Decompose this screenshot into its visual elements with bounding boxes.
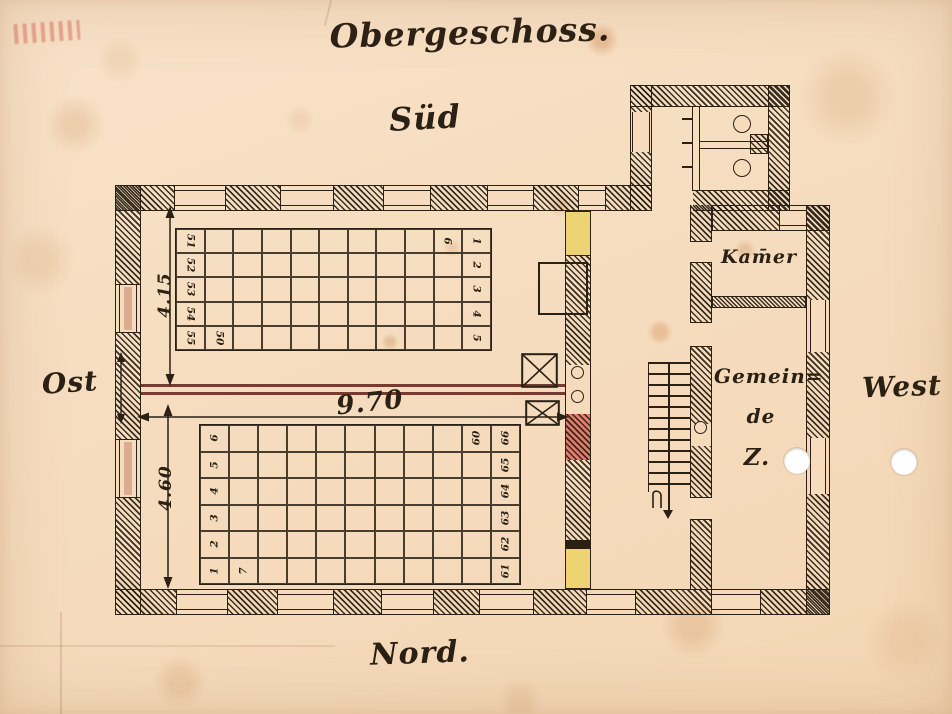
seat-number: 55 xyxy=(184,331,196,346)
seat-cell: 5 xyxy=(200,452,229,479)
seat-cell xyxy=(405,277,434,301)
seat-cell xyxy=(233,326,262,350)
wall-segment xyxy=(691,347,711,424)
wall-post xyxy=(694,421,707,434)
seat-cell: 1 xyxy=(200,558,229,585)
window xyxy=(712,594,760,610)
seat-cell: 4 xyxy=(200,478,229,505)
window xyxy=(810,300,826,352)
seat-cell: 51 xyxy=(176,229,205,253)
seat-cell xyxy=(405,253,434,277)
wall-segment xyxy=(533,185,579,211)
seat-cell xyxy=(262,326,291,350)
seat-cell xyxy=(229,505,258,532)
wall-post xyxy=(571,366,584,379)
seat-number: 66 xyxy=(499,431,511,446)
seat-cell xyxy=(258,505,287,532)
seat-cell xyxy=(348,277,377,301)
seat-cell: 2 xyxy=(462,253,491,277)
paper-crease xyxy=(0,645,335,647)
seat-cell xyxy=(287,505,316,532)
seat-cell xyxy=(348,302,377,326)
seat-cell xyxy=(205,253,234,277)
seat-cell xyxy=(319,302,348,326)
seat-cell xyxy=(348,229,377,253)
seat-number: 2 xyxy=(209,541,221,548)
seat-cell xyxy=(205,302,234,326)
seat-cell xyxy=(287,531,316,558)
seat-number: 4 xyxy=(209,488,221,495)
punch-hole xyxy=(784,448,810,474)
window xyxy=(632,112,650,152)
staircase-direction-arrow xyxy=(663,510,673,519)
seat-cell xyxy=(205,229,234,253)
seat-number: 5 xyxy=(209,461,221,468)
wall-segment xyxy=(630,85,790,107)
seat-cell: 63 xyxy=(491,505,520,532)
seat-cell xyxy=(287,425,316,452)
seat-number: 3 xyxy=(209,514,221,521)
archive-stamp xyxy=(13,20,80,45)
seat-cell xyxy=(375,425,404,452)
seat-cell xyxy=(291,229,320,253)
seat-number: 64 xyxy=(499,484,511,499)
seat-cell: 55 xyxy=(176,326,205,350)
seat-cell: 3 xyxy=(462,277,491,301)
room-label-gemeindezimmer: de xyxy=(714,406,808,427)
door-hinge-tick xyxy=(682,142,692,144)
staircase-center-line xyxy=(668,362,670,510)
wall-segment xyxy=(227,589,278,615)
seat-cell xyxy=(258,478,287,505)
seating-grid-upper: 516152253354455505 xyxy=(175,228,492,351)
window xyxy=(175,190,225,206)
seat-cell xyxy=(434,277,463,301)
seat-cell xyxy=(205,277,234,301)
wall-segment xyxy=(691,446,711,497)
seat-cell xyxy=(404,478,433,505)
seat-cell xyxy=(404,425,433,452)
seat-cell: 3 xyxy=(200,505,229,532)
seat-cell xyxy=(433,452,462,479)
wall-segment xyxy=(807,205,829,300)
window xyxy=(384,190,430,206)
seat-cell xyxy=(229,452,258,479)
seat-cell xyxy=(229,425,258,452)
seat-cell xyxy=(319,326,348,350)
stair-direction-mark xyxy=(650,488,666,510)
seat-cell xyxy=(291,277,320,301)
window xyxy=(177,594,227,610)
wall-segment xyxy=(692,107,700,191)
seat-cell xyxy=(291,326,320,350)
wall-segment xyxy=(807,494,829,615)
seat-cell xyxy=(405,326,434,350)
seat-cell xyxy=(433,505,462,532)
window xyxy=(488,190,533,206)
seat-cell xyxy=(375,505,404,532)
compass-east-label: Ost xyxy=(24,365,116,401)
wall-segment xyxy=(333,589,382,615)
wall-marking-red xyxy=(566,414,590,460)
seat-cell xyxy=(345,531,374,558)
seat-cell xyxy=(345,558,374,585)
seat-cell xyxy=(345,452,374,479)
seat-cell xyxy=(376,326,405,350)
seat-number: 50 xyxy=(213,331,225,346)
seat-cell xyxy=(291,253,320,277)
seat-cell xyxy=(316,452,345,479)
seat-cell xyxy=(375,558,404,585)
seat-cell xyxy=(434,302,463,326)
seat-cell xyxy=(462,478,491,505)
seat-cell: 65 xyxy=(491,452,520,479)
seat-number: 51 xyxy=(184,234,196,249)
seat-cell xyxy=(462,452,491,479)
seat-cell xyxy=(287,558,316,585)
wall-joint xyxy=(566,540,590,548)
seat-cell xyxy=(404,452,433,479)
seat-cell: 6 xyxy=(200,425,229,452)
seat-cell xyxy=(258,425,287,452)
seat-cell xyxy=(319,253,348,277)
seat-cell xyxy=(433,425,462,452)
door-opening xyxy=(780,210,806,226)
wall-segment xyxy=(115,185,141,285)
seat-cell xyxy=(345,505,374,532)
wall-segment xyxy=(333,185,384,211)
seat-cell xyxy=(375,452,404,479)
compass-north-label: Nord. xyxy=(354,636,485,672)
wall-post xyxy=(571,390,584,403)
seat-cell xyxy=(433,558,462,585)
toilet-bowl xyxy=(733,159,751,177)
seating-grid-lower: 660665654643632621761 xyxy=(199,424,521,585)
wall-segment xyxy=(115,497,141,615)
seat-cell xyxy=(433,478,462,505)
seat-cell xyxy=(434,253,463,277)
seat-number: 65 xyxy=(499,457,511,472)
seat-number: 54 xyxy=(184,306,196,321)
window xyxy=(278,594,333,610)
seat-number: 52 xyxy=(184,258,196,273)
seat-cell: 61 xyxy=(491,558,520,585)
seat-cell xyxy=(287,452,316,479)
wall-segment xyxy=(430,185,488,211)
seat-cell: 6 xyxy=(434,229,463,253)
seat-cell xyxy=(404,505,433,532)
seat-cell xyxy=(229,478,258,505)
seat-cell xyxy=(287,478,316,505)
seat-cell xyxy=(433,531,462,558)
door-hinge-tick xyxy=(682,118,692,120)
seat-cell: 7 xyxy=(229,558,258,585)
seat-cell xyxy=(319,277,348,301)
seat-number: 3 xyxy=(471,286,483,293)
window xyxy=(480,594,533,610)
wall-marking-yellow xyxy=(565,548,591,589)
seat-cell xyxy=(233,229,262,253)
dimension-label-lower-depth: 4.60 xyxy=(158,456,178,520)
wall-segment xyxy=(433,589,480,615)
seat-cell xyxy=(262,229,291,253)
seat-cell: 54 xyxy=(176,302,205,326)
seat-cell xyxy=(376,253,405,277)
window xyxy=(119,440,137,497)
seat-cell xyxy=(233,253,262,277)
window xyxy=(587,594,635,610)
door-opening xyxy=(690,322,712,347)
seat-number: 7 xyxy=(238,567,250,574)
compass-west-label: West xyxy=(852,370,952,403)
seat-cell: 60 xyxy=(462,425,491,452)
seat-number: 5 xyxy=(471,334,483,341)
room-label-gemeindezimmer: Gemein= xyxy=(714,366,808,387)
stove xyxy=(538,262,588,315)
seat-cell xyxy=(345,478,374,505)
seat-cell xyxy=(462,505,491,532)
seat-cell xyxy=(316,478,345,505)
window xyxy=(281,190,333,206)
seat-cell: 64 xyxy=(491,478,520,505)
paper-crease xyxy=(60,612,62,714)
seat-cell xyxy=(258,558,287,585)
scanned-floor-plan: Obergeschoss. Süd Ost West Nord. xyxy=(0,0,952,714)
wall-segment xyxy=(631,86,651,112)
window xyxy=(810,438,826,494)
seat-cell xyxy=(316,425,345,452)
seat-cell xyxy=(258,452,287,479)
seat-cell xyxy=(348,326,377,350)
partition-wall xyxy=(712,296,806,308)
seat-number: 1 xyxy=(209,567,221,574)
seat-cell xyxy=(229,531,258,558)
seat-number: 62 xyxy=(499,537,511,552)
wall-segment xyxy=(691,520,711,589)
seat-cell xyxy=(316,558,345,585)
seat-cell xyxy=(404,558,433,585)
wall-segment xyxy=(691,263,711,322)
seat-cell xyxy=(348,253,377,277)
window xyxy=(382,594,433,610)
window xyxy=(119,285,137,332)
seat-number: 2 xyxy=(471,262,483,269)
toilet-bowl xyxy=(733,115,751,133)
wall-segment xyxy=(225,185,281,211)
seat-cell xyxy=(375,478,404,505)
seat-cell xyxy=(319,229,348,253)
seat-cell: 53 xyxy=(176,277,205,301)
door-hinge-tick xyxy=(682,166,692,168)
seat-cell xyxy=(405,229,434,253)
compass-south-label: Süd xyxy=(354,98,496,139)
seat-cell xyxy=(404,531,433,558)
stove-crossed-box xyxy=(521,353,558,388)
seat-cell xyxy=(258,531,287,558)
wall-segment xyxy=(635,589,712,615)
seat-cell xyxy=(376,302,405,326)
seat-number: 63 xyxy=(499,510,511,525)
wall-segment xyxy=(533,589,587,615)
seat-number: 6 xyxy=(442,237,454,244)
seat-number: 60 xyxy=(470,431,482,446)
seat-cell xyxy=(233,277,262,301)
seat-cell xyxy=(262,253,291,277)
seat-cell: 50 xyxy=(205,326,234,350)
window xyxy=(579,190,605,206)
seat-cell xyxy=(376,229,405,253)
seat-cell xyxy=(345,425,374,452)
wall-segment xyxy=(631,152,651,211)
fixture xyxy=(750,134,768,154)
seat-cell xyxy=(233,302,262,326)
wall-segment xyxy=(712,205,780,231)
seat-number: 4 xyxy=(471,310,483,317)
seat-cell xyxy=(462,558,491,585)
gallery-parapet-line xyxy=(141,384,565,387)
seat-cell: 2 xyxy=(200,531,229,558)
door-opening xyxy=(690,241,712,263)
seat-number: 61 xyxy=(499,563,511,578)
seat-cell xyxy=(262,277,291,301)
seat-cell xyxy=(262,302,291,326)
seat-cell xyxy=(291,302,320,326)
seat-number: 6 xyxy=(209,435,221,442)
seat-cell: 52 xyxy=(176,253,205,277)
wall-marking-yellow xyxy=(565,211,591,256)
plan-title: Obergeschoss. xyxy=(320,12,621,54)
seat-number: 1 xyxy=(471,237,483,244)
dimension-label-upper-depth: 4.15 xyxy=(157,263,177,327)
seat-cell: 5 xyxy=(462,326,491,350)
seat-cell xyxy=(405,302,434,326)
seat-cell xyxy=(434,326,463,350)
seat-cell xyxy=(316,531,345,558)
room-label-kammer: Kam̄er xyxy=(712,248,806,268)
seat-cell: 4 xyxy=(462,302,491,326)
seat-cell xyxy=(462,531,491,558)
seat-cell: 62 xyxy=(491,531,520,558)
seat-cell xyxy=(375,531,404,558)
door-opening xyxy=(690,497,712,520)
seat-cell: 66 xyxy=(491,425,520,452)
punch-hole xyxy=(891,449,917,475)
seat-cell xyxy=(376,277,405,301)
seat-cell: 1 xyxy=(462,229,491,253)
seat-cell xyxy=(316,505,345,532)
seat-number: 53 xyxy=(184,282,196,297)
wall-segment xyxy=(566,460,590,540)
